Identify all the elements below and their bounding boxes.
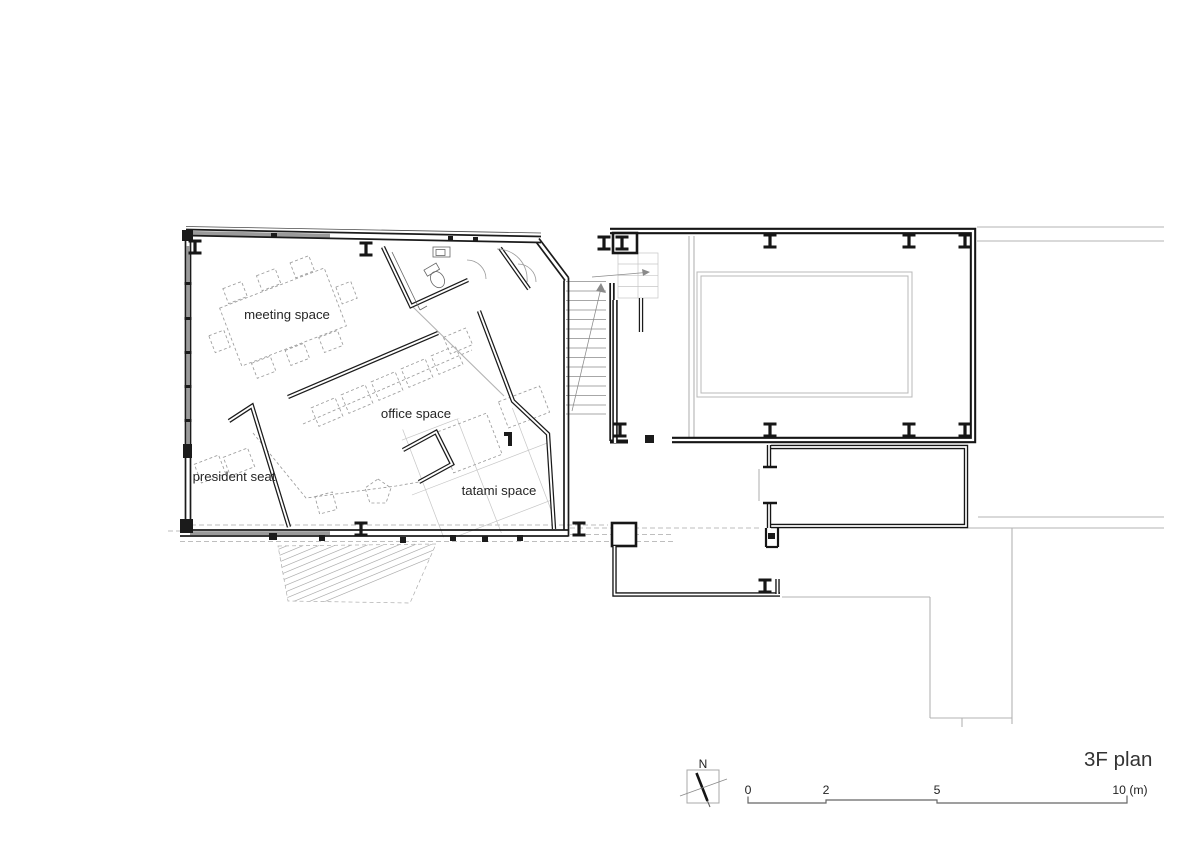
tatami-grid [326, 307, 609, 603]
main-staircase [566, 282, 606, 415]
room-label-tatami: tatami space [462, 483, 537, 498]
scale-tick-5: 5 [934, 783, 941, 797]
north-arrow-icon: N [680, 757, 727, 807]
room-label-office: office space [381, 406, 451, 421]
room-label-president: president seat [193, 469, 276, 484]
annex-rooms [612, 445, 966, 595]
floor-plan-canvas: meeting space office space president sea… [0, 0, 1200, 849]
scale-tick-10: 10 (m) [1112, 783, 1147, 797]
wc-bowl-icon [424, 263, 448, 290]
context-outline [168, 227, 1164, 727]
void-opening [697, 272, 912, 397]
right-building [610, 231, 973, 443]
toilet-fixtures [392, 247, 536, 310]
north-letter: N [699, 757, 708, 771]
canopy-louvers [255, 461, 460, 631]
scale-bar: 0 2 5 10 (m) [745, 783, 1148, 803]
room-label-meeting: meeting space [244, 307, 330, 322]
scale-tick-2: 2 [823, 783, 830, 797]
floor-plan-page: meeting space office space president sea… [0, 0, 1200, 849]
plan-title: 3F plan [1084, 748, 1152, 771]
scale-tick-0: 0 [745, 783, 752, 797]
left-building-partitions [229, 247, 641, 529]
